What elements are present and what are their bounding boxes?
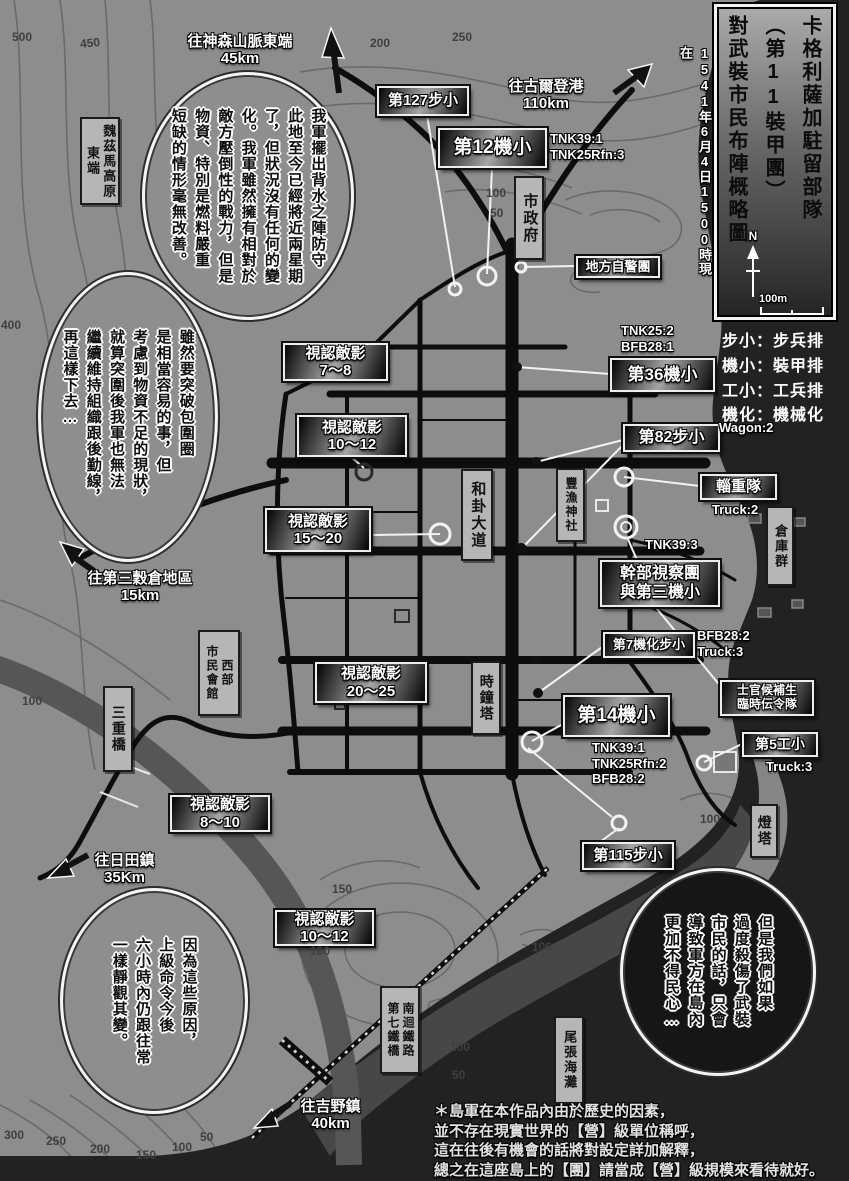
speech-bubble-supply: 我軍擺出背水之陣防守 此地至今已經將近兩星期 了，但狀況沒有任何的變 化。我軍雖…: [142, 72, 354, 320]
unit-plaque-127th-inf: 第127步小: [377, 86, 469, 116]
unit-plaque-14th-armor: 第14機小: [563, 695, 670, 737]
scale: 100m: [759, 293, 825, 317]
place-label-waka-avenue: 和卦大道: [461, 469, 493, 561]
contour-number: 100: [700, 812, 720, 826]
scale-bar: [759, 305, 825, 317]
contour-number: 250: [452, 30, 472, 44]
legend-row: 工小：工兵排: [722, 380, 824, 405]
contour-number: 100: [172, 1140, 192, 1154]
contour-number: 300: [4, 1128, 24, 1142]
sighting-label-2: 視認敵影 10～12: [297, 415, 407, 457]
contour-number: 250: [46, 1134, 66, 1148]
speech-bubble-text: 但是我們如果 過度殺傷了武裝 市民的話，只會 導致軍方在島內 更加不得民心…: [660, 915, 776, 1029]
contour-number: 400: [1, 318, 21, 332]
contour-number: 50: [490, 206, 503, 220]
scale-label: 100m: [759, 293, 787, 305]
place-label-plateau: 魏茲馬高原 東端: [80, 117, 120, 205]
unit-plaque-7th-mech-inf: 第7機化步小: [603, 632, 695, 658]
sighting-label-1: 視認敵影 7～8: [283, 343, 388, 381]
footnote: ＊島軍在本作品內由於歷史的因素， 並不存在現實世界的【營】級單位稱呼， 這在往後…: [434, 1102, 846, 1180]
sighting-label-5: 視認敵影 8～10: [170, 795, 270, 832]
compass-n-label: N: [743, 229, 763, 243]
place-label-triple-bridge: 三重橋: [103, 686, 133, 772]
speech-bubble-text: 因為這些原因， 上級命令今後 六小時內仍跟往常 一樣靜觀其變。: [108, 937, 201, 1065]
place-label-city-hall: 市政府: [514, 176, 544, 260]
unit-plaque-cadet-courier: 士官候補生 臨時伝令隊: [720, 680, 814, 716]
unit-detail-5th: Truck:3: [766, 759, 812, 775]
direction-label-hida: 往日田鎮 35Km: [82, 852, 167, 887]
contour-number: 100: [22, 694, 42, 708]
unit-detail-36th: TNK25:2 BFB28:1: [621, 323, 674, 354]
speech-bubble-civilians: 但是我們如果 過度殺傷了武裝 市民的話，只會 導致軍方在島內 更加不得民心…: [620, 868, 816, 1076]
speech-bubble-text: 我軍擺出背水之陣防守 此地至今已經將近兩星期 了，但狀況沒有任何的變 化。我軍雖…: [167, 108, 330, 284]
contour-number: 500: [12, 30, 32, 44]
contour-number: 200: [90, 1142, 110, 1156]
unit-plaque-logistics: 輜重隊: [700, 474, 777, 500]
map-datetime: 1541年6月4日1500時現在: [676, 46, 714, 276]
contour-number: 150: [136, 1148, 156, 1162]
sighting-label-3: 視認敵影 15～20: [265, 508, 371, 552]
map-title: 卡格利薩加駐留部隊 （第11裝甲團） 對武裝市民布陣概略圖: [717, 15, 828, 311]
speech-bubble-text: 雖然要突破包圍圈 是相當容易的事，但 考慮到物資不足的現狀， 就算突圍後我軍也無…: [58, 329, 198, 505]
place-label-shrine: 豐漁神社: [556, 468, 585, 542]
unit-plaque-hq-inspection: 幹部視察團 與第三機小: [600, 560, 720, 607]
place-label-warehouses: 倉庫群: [766, 506, 794, 586]
place-label-civic-hall: 西部 市民會館: [198, 630, 240, 716]
direction-label-yoshino: 往吉野鎮 40km: [288, 1098, 373, 1133]
contour-number: 450: [79, 35, 100, 51]
speech-bubble-breakout: 雖然要突破包圍圈 是相當容易的事，但 考慮到物資不足的現狀， 就算突圍後我軍也無…: [38, 272, 218, 562]
direction-label-granary: 往第三穀倉地區 15km: [75, 570, 205, 605]
place-label-owari-beach: 尾張海灘: [554, 1016, 584, 1104]
contour-number: 50: [452, 1068, 465, 1082]
unit-plaque-82nd-inf: 第82步小: [623, 424, 720, 452]
unit-plaque-115th-inf: 第115步小: [582, 842, 674, 870]
place-label-lighthouse: 燈塔: [750, 804, 778, 858]
unit-detail-82nd: Wagon:2: [719, 420, 773, 436]
legend-row: 步小：步兵排: [722, 330, 824, 355]
contour-number: 100: [450, 1040, 470, 1054]
contour-number: 100: [310, 944, 330, 958]
unit-plaque-12th-armor: 第12機小: [438, 128, 547, 168]
legend: 步小：步兵排 機小：裝甲排 工小：工兵排 機化：機械化: [722, 330, 824, 429]
place-label-clock-tower: 時鐘塔: [471, 661, 501, 735]
contour-number: 100: [486, 186, 506, 200]
unit-plaque-36th-armor: 第36機小: [610, 358, 715, 392]
contour-number: 50: [200, 1130, 213, 1144]
unit-plaque-5th-eng: 第5工小: [742, 732, 818, 757]
contour-number: 100: [532, 940, 552, 954]
sighting-label-6: 視認敵影 10～12: [275, 910, 374, 946]
direction-label-port: 往古爾登港 110km: [486, 78, 606, 113]
sighting-label-4: 視認敵影 20～25: [315, 662, 427, 703]
direction-label-mountains: 往神森山脈東端 45km: [160, 33, 320, 68]
unit-detail-hq: TNK39:3: [645, 537, 698, 553]
unit-plaque-local-militia: 地方自警團: [576, 256, 660, 278]
map-title-box: 卡格利薩加駐留部隊 （第11裝甲團） 對武裝市民布陣概略圖 N 100m: [714, 4, 836, 320]
unit-detail-14th: TNK39:1 TNK25Rfn:2 BFB28:2: [592, 740, 666, 787]
contour-number: 200: [370, 36, 390, 50]
unit-detail-7th: BFB28:2 Truck:3: [697, 628, 750, 659]
place-label-rail-bridge: 南迴鐵路 第七鐵橋: [380, 986, 420, 1074]
legend-row: 機小：裝甲排: [722, 355, 824, 380]
unit-detail-logistics: Truck:2: [712, 502, 758, 518]
contour-number: 150: [332, 882, 352, 896]
tactical-map-page: 我軍擺出背水之陣防守 此地至今已經將近兩星期 了，但狀況沒有任何的變 化。我軍雖…: [0, 0, 849, 1181]
unit-detail-12th: TNK39:1 TNK25Rfn:3: [550, 131, 624, 162]
speech-bubble-orders: 因為這些原因， 上級命令今後 六小時內仍跟往常 一樣靜觀其變。: [60, 888, 248, 1114]
